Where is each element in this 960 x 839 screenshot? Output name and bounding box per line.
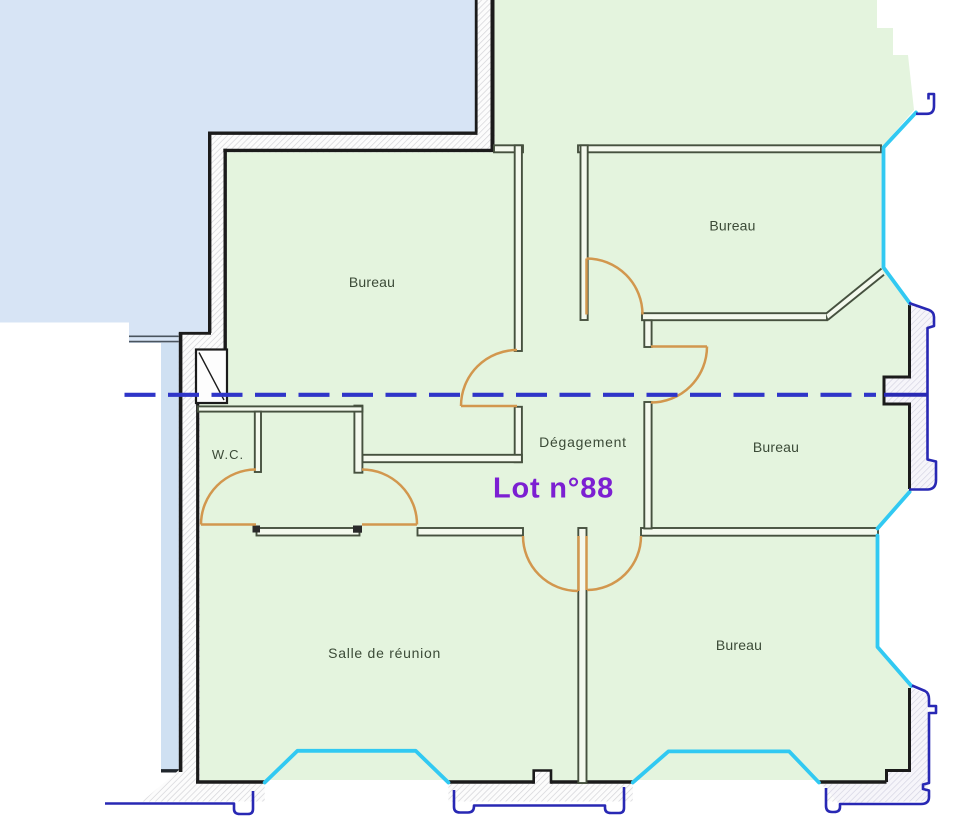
svg-text:Bureau: Bureau [709, 218, 755, 234]
svg-text:Bureau: Bureau [753, 439, 799, 455]
svg-text:Lot n°88: Lot n°88 [493, 473, 614, 505]
svg-text:Bureau: Bureau [716, 637, 762, 653]
svg-text:W.C.: W.C. [212, 447, 244, 462]
svg-text:Salle de réunion: Salle de réunion [328, 645, 441, 661]
svg-text:Dégagement: Dégagement [539, 434, 627, 450]
svg-text:Bureau: Bureau [349, 274, 395, 290]
